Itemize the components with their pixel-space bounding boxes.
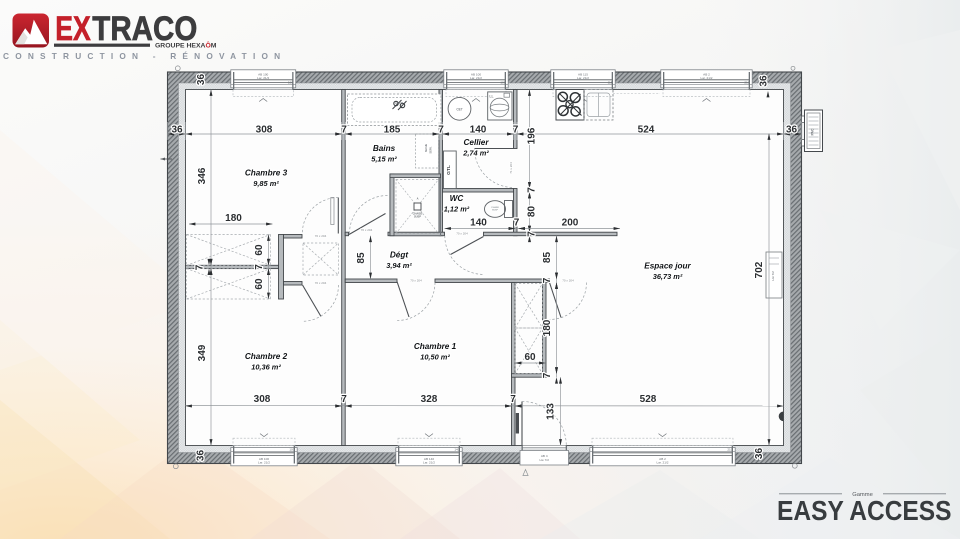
- svg-text:140: 140: [454, 448, 459, 452]
- svg-text:85: 85: [356, 252, 367, 264]
- svg-text:Lar. 21/2: Lar. 21/2: [423, 461, 435, 465]
- svg-text:7: 7: [527, 231, 538, 237]
- svg-text:Bains: Bains: [373, 144, 396, 153]
- svg-text:100: 100: [289, 448, 294, 452]
- svg-text:CONSTRUCTION - RÉNOVATION: CONSTRUCTION - RÉNOVATION: [3, 51, 286, 61]
- svg-text:7: 7: [527, 187, 538, 193]
- svg-text:WC: WC: [450, 194, 465, 203]
- svg-text:100: 100: [500, 80, 505, 84]
- svg-text:100: 100: [288, 80, 293, 84]
- svg-text:SERV.: SERV.: [430, 146, 433, 153]
- svg-text:EASY ACCESS: EASY ACCESS: [777, 495, 952, 526]
- svg-text:70 x 204: 70 x 204: [315, 281, 327, 285]
- svg-text:70 x 204: 70 x 204: [562, 279, 574, 283]
- svg-text:36: 36: [196, 450, 207, 462]
- svg-text:140: 140: [470, 218, 487, 229]
- svg-text:Lar. 21/2: Lar. 21/2: [257, 76, 269, 80]
- svg-text:Lar. 21/2: Lar. 21/2: [700, 76, 712, 80]
- svg-text:196: 196: [527, 127, 538, 144]
- svg-text:Chambre 2: Chambre 2: [245, 352, 288, 361]
- svg-text:10,36 m²: 10,36 m²: [251, 363, 281, 372]
- svg-text:10,50 m²: 10,50 m²: [420, 353, 450, 362]
- svg-text:7: 7: [542, 277, 553, 283]
- svg-text:7: 7: [438, 124, 444, 135]
- svg-text:524: 524: [638, 124, 655, 135]
- svg-text:ARICO: ARICO: [395, 102, 403, 105]
- svg-text:Espace jour: Espace jour: [644, 262, 691, 271]
- svg-text:36: 36: [786, 124, 798, 135]
- svg-text:71 x 204: 71 x 204: [509, 162, 513, 174]
- svg-text:PAC: PAC: [811, 128, 815, 135]
- svg-text:80: 80: [527, 206, 538, 218]
- svg-text:60: 60: [254, 278, 265, 290]
- svg-text:346: 346: [197, 167, 208, 184]
- svg-text:Lar. 21/2: Lar. 21/2: [258, 461, 270, 465]
- svg-text:702: 702: [754, 261, 765, 278]
- svg-text:Chambre 1: Chambre 1: [414, 342, 457, 351]
- svg-text:36: 36: [196, 74, 207, 86]
- svg-text:115: 115: [608, 80, 613, 84]
- svg-text:LL: LL: [489, 95, 493, 99]
- svg-text:70 x 204: 70 x 204: [315, 234, 327, 238]
- svg-text:349: 349: [197, 344, 208, 361]
- svg-text:9,85 m²: 9,85 m²: [253, 179, 279, 188]
- svg-text:Lté 7/2: Lté 7/2: [539, 458, 549, 462]
- svg-text:185: 185: [384, 124, 401, 135]
- svg-text:GTL: GTL: [446, 165, 452, 175]
- svg-text:Chambre 3: Chambre 3: [245, 169, 288, 178]
- svg-text:70 x 204: 70 x 204: [361, 228, 373, 232]
- svg-text:210: 210: [727, 448, 732, 452]
- svg-text:85: 85: [542, 252, 553, 264]
- svg-text:528: 528: [640, 394, 657, 405]
- svg-text:210: 210: [744, 80, 749, 84]
- svg-text:EX: EX: [55, 10, 91, 48]
- svg-text:GROUPE HEXAÔM: GROUPE HEXAÔM: [155, 41, 217, 50]
- svg-text:200: 200: [562, 218, 579, 229]
- svg-text:A: A: [417, 197, 419, 201]
- svg-text:36,73 m²: 36,73 m²: [653, 272, 683, 281]
- svg-text:7: 7: [195, 264, 206, 270]
- svg-text:SUSP: SUSP: [414, 215, 421, 219]
- svg-text:7: 7: [514, 218, 520, 229]
- svg-text:180: 180: [225, 213, 242, 224]
- svg-text:Lar. 21/2: Lar. 21/2: [470, 76, 482, 80]
- svg-text:36: 36: [171, 124, 183, 135]
- svg-text:180: 180: [542, 319, 553, 336]
- svg-text:SUSP: SUSP: [492, 210, 498, 212]
- svg-text:Dégt: Dégt: [390, 251, 408, 260]
- svg-text:70 x 204: 70 x 204: [410, 279, 422, 283]
- svg-text:Lté 7/2: Lté 7/2: [771, 271, 775, 281]
- svg-text:7: 7: [341, 124, 347, 135]
- svg-text:7: 7: [254, 264, 265, 270]
- svg-text:7: 7: [513, 124, 519, 135]
- svg-text:60: 60: [524, 352, 536, 363]
- svg-text:2,74 m²: 2,74 m²: [462, 149, 489, 158]
- svg-text:36: 36: [754, 448, 765, 460]
- svg-text:36: 36: [759, 75, 770, 87]
- svg-text:133: 133: [546, 403, 557, 420]
- svg-text:308: 308: [256, 124, 273, 135]
- svg-text:7: 7: [542, 372, 553, 378]
- svg-text:SECHE: SECHE: [425, 143, 428, 152]
- svg-text:7: 7: [341, 394, 347, 405]
- svg-text:328: 328: [421, 394, 438, 405]
- svg-text:5,15 m²: 5,15 m²: [371, 155, 397, 164]
- svg-text:Lar. 21/2: Lar. 21/2: [656, 461, 668, 465]
- svg-text:CET: CET: [456, 108, 462, 112]
- svg-text:70 x 204: 70 x 204: [456, 232, 468, 236]
- svg-text:Lar. 21/2: Lar. 21/2: [577, 76, 589, 80]
- svg-text:1,12 m²: 1,12 m²: [444, 205, 470, 214]
- svg-text:7: 7: [510, 394, 516, 405]
- svg-text:140: 140: [470, 124, 487, 135]
- svg-text:3,94 m²: 3,94 m²: [386, 261, 412, 270]
- svg-text:308: 308: [254, 394, 271, 405]
- svg-text:Cellier: Cellier: [463, 138, 489, 147]
- svg-text:60: 60: [254, 244, 265, 256]
